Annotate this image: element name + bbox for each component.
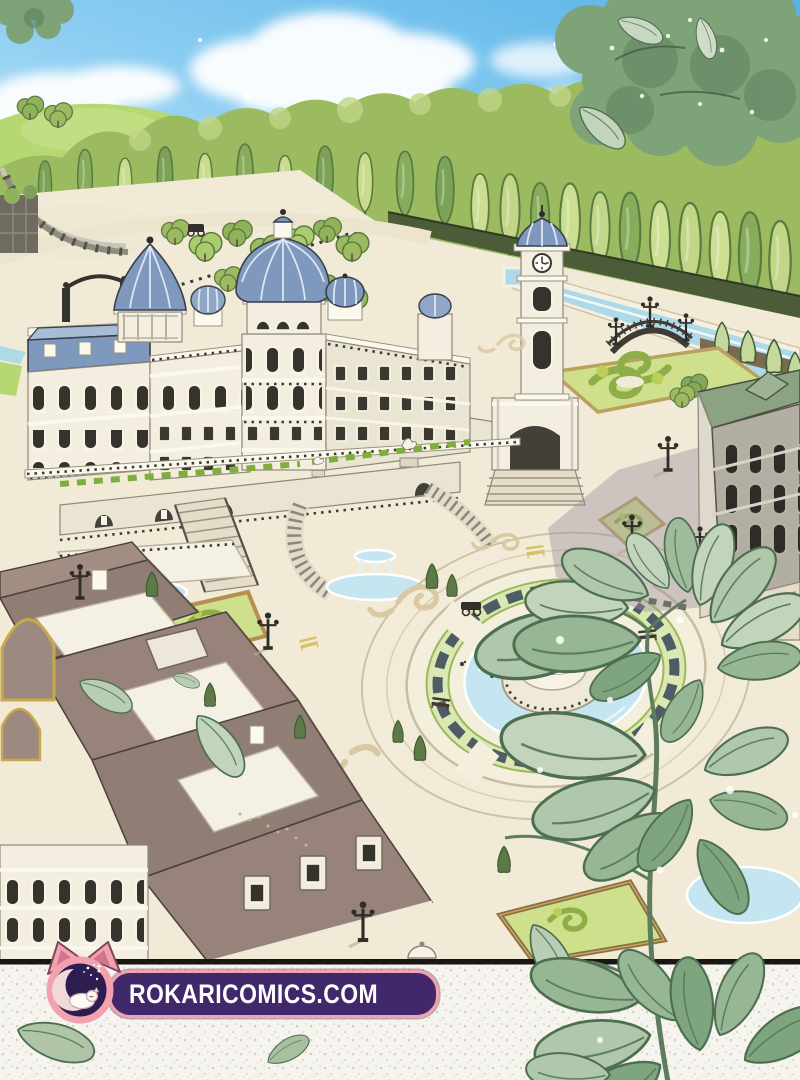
webtoon-panel: ROKARICOMICS.COM (0, 0, 800, 1080)
palace-left-wing (28, 322, 152, 480)
watermark-text: ROKARICOMICS.COM (129, 979, 378, 1010)
estate-illustration (0, 0, 800, 1080)
site-watermark: ROKARICOMICS.COM (0, 938, 420, 1038)
trellis (0, 195, 38, 253)
watermark-badge: ROKARICOMICS.COM (108, 970, 439, 1018)
palace-small-dome-left (191, 286, 225, 326)
clock-tower (514, 205, 570, 400)
cat-moon-logo-icon (36, 938, 132, 1038)
gold-arch-roof (2, 619, 54, 700)
palace-small-dome-right (326, 274, 364, 321)
